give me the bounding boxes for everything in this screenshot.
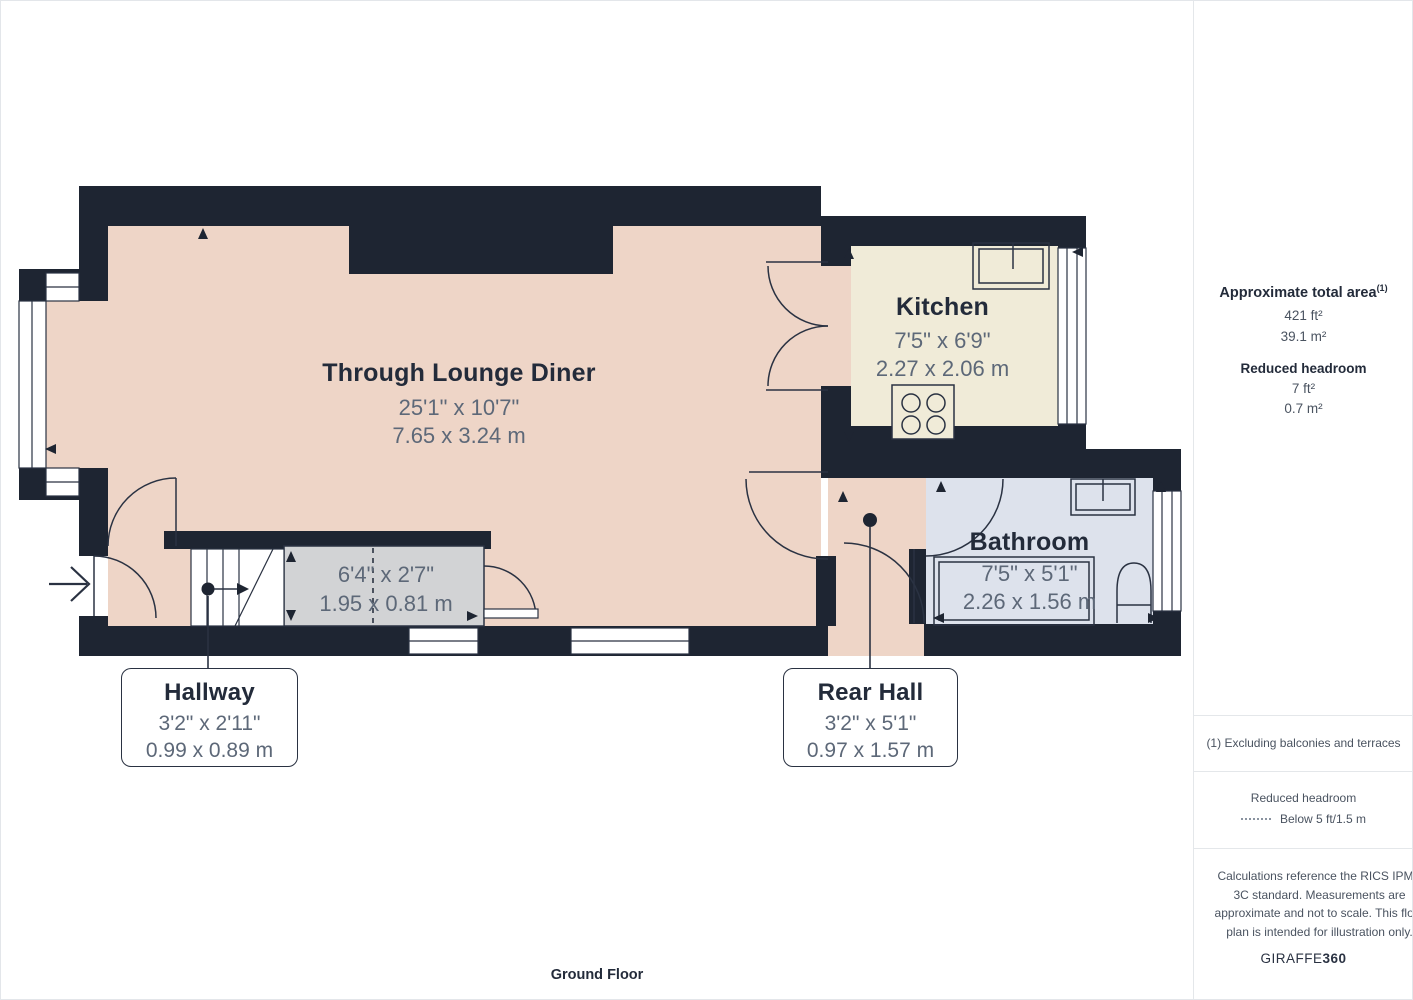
reduced-headroom-heading: Reduced headroom	[1194, 361, 1413, 376]
room-dims-m: 7.65 x 3.24 m	[259, 422, 659, 450]
kitchen-window	[1058, 248, 1086, 424]
footnote: (1) Excluding balconies and terraces	[1194, 736, 1413, 750]
stove	[892, 385, 954, 439]
storage-door-leaf	[484, 609, 538, 618]
room-label-lounge: Through Lounge Diner 25'1" x 10'7" 7.65 …	[259, 359, 659, 450]
room-dims-ft: 3'2" x 2'11"	[122, 710, 297, 737]
callout-rear-hall: Rear Hall 3'2" x 5'1" 0.97 x 1.57 m	[783, 668, 958, 767]
room-dims-ft: 3'2" x 5'1"	[784, 710, 957, 737]
dotted-line-icon	[1241, 818, 1271, 820]
chimney-breast	[349, 226, 613, 274]
total-area-m: 39.1 m²	[1194, 329, 1413, 344]
reduced-headroom-ft: 7 ft²	[1194, 381, 1413, 396]
total-area-ft: 421 ft²	[1194, 308, 1413, 323]
room-name: Kitchen	[840, 293, 1045, 322]
sidebar-divider	[1194, 771, 1413, 772]
room-dims-m: 2.27 x 2.06 m	[840, 355, 1045, 383]
room-dims-ft: 25'1" x 10'7"	[259, 394, 659, 422]
room-label-bathroom: Bathroom 7'5" x 5'1" 2.26 x 1.56 m	[927, 528, 1132, 616]
brand-right: 360	[1322, 951, 1346, 966]
floorplan-page: Through Lounge Diner 25'1" x 10'7" 7.65 …	[0, 0, 1413, 1000]
room-dims-m: 0.97 x 1.57 m	[784, 737, 957, 764]
room-name: Bathroom	[927, 528, 1132, 557]
room-dims-ft: 7'5" x 5'1"	[927, 560, 1132, 588]
room-dims-m: 1.95 x 0.81 m	[288, 589, 484, 618]
floorplan-canvas: Through Lounge Diner 25'1" x 10'7" 7.65 …	[1, 1, 1193, 999]
hallway-anchor-dot	[202, 583, 215, 596]
room-label-kitchen: Kitchen 7'5" x 6'9" 2.27 x 2.06 m	[840, 293, 1045, 383]
total-area-heading: Approximate total area(1)	[1194, 283, 1413, 301]
footnote-marker: (1)	[1377, 283, 1388, 293]
floor-label: Ground Floor	[1, 967, 1193, 983]
callout-hallway: Hallway 3'2" x 2'11" 0.99 x 0.89 m	[121, 668, 298, 767]
room-dims-m: 0.99 x 0.89 m	[122, 737, 297, 764]
room-dims-m: 2.26 x 1.56 m	[927, 588, 1132, 616]
legend-heading: Reduced headroom	[1194, 791, 1413, 805]
rearhall-anchor-dot	[863, 513, 877, 527]
room-name: Through Lounge Diner	[259, 359, 659, 388]
bay-fill	[46, 301, 108, 468]
sidebar-divider	[1194, 715, 1413, 716]
disclaimer-text: Calculations reference the RICS IPMS 3C …	[1194, 867, 1413, 941]
summary-sidebar: Approximate total area(1) 421 ft² 39.1 m…	[1193, 1, 1413, 999]
brand-left: GIRAFFE	[1260, 951, 1322, 966]
giraffe360-logo: GIRAFFE360	[1194, 951, 1413, 966]
floorplan-svg	[1, 1, 1193, 999]
legend-label: Below 5 ft/1.5 m	[1280, 812, 1366, 826]
sidebar-divider	[1194, 848, 1413, 849]
room-dims-ft: 6'4" x 2'7"	[288, 560, 484, 589]
bathroom-window	[1153, 491, 1181, 611]
reduced-headroom-m: 0.7 m²	[1194, 401, 1413, 416]
room-label-storage: 6'4" x 2'7" 1.95 x 0.81 m	[288, 560, 484, 618]
room-dims-ft: 7'5" x 6'9"	[840, 327, 1045, 355]
legend-row: Below 5 ft/1.5 m	[1194, 812, 1413, 826]
room-name: Hallway	[122, 679, 297, 707]
room-name: Rear Hall	[784, 679, 957, 707]
